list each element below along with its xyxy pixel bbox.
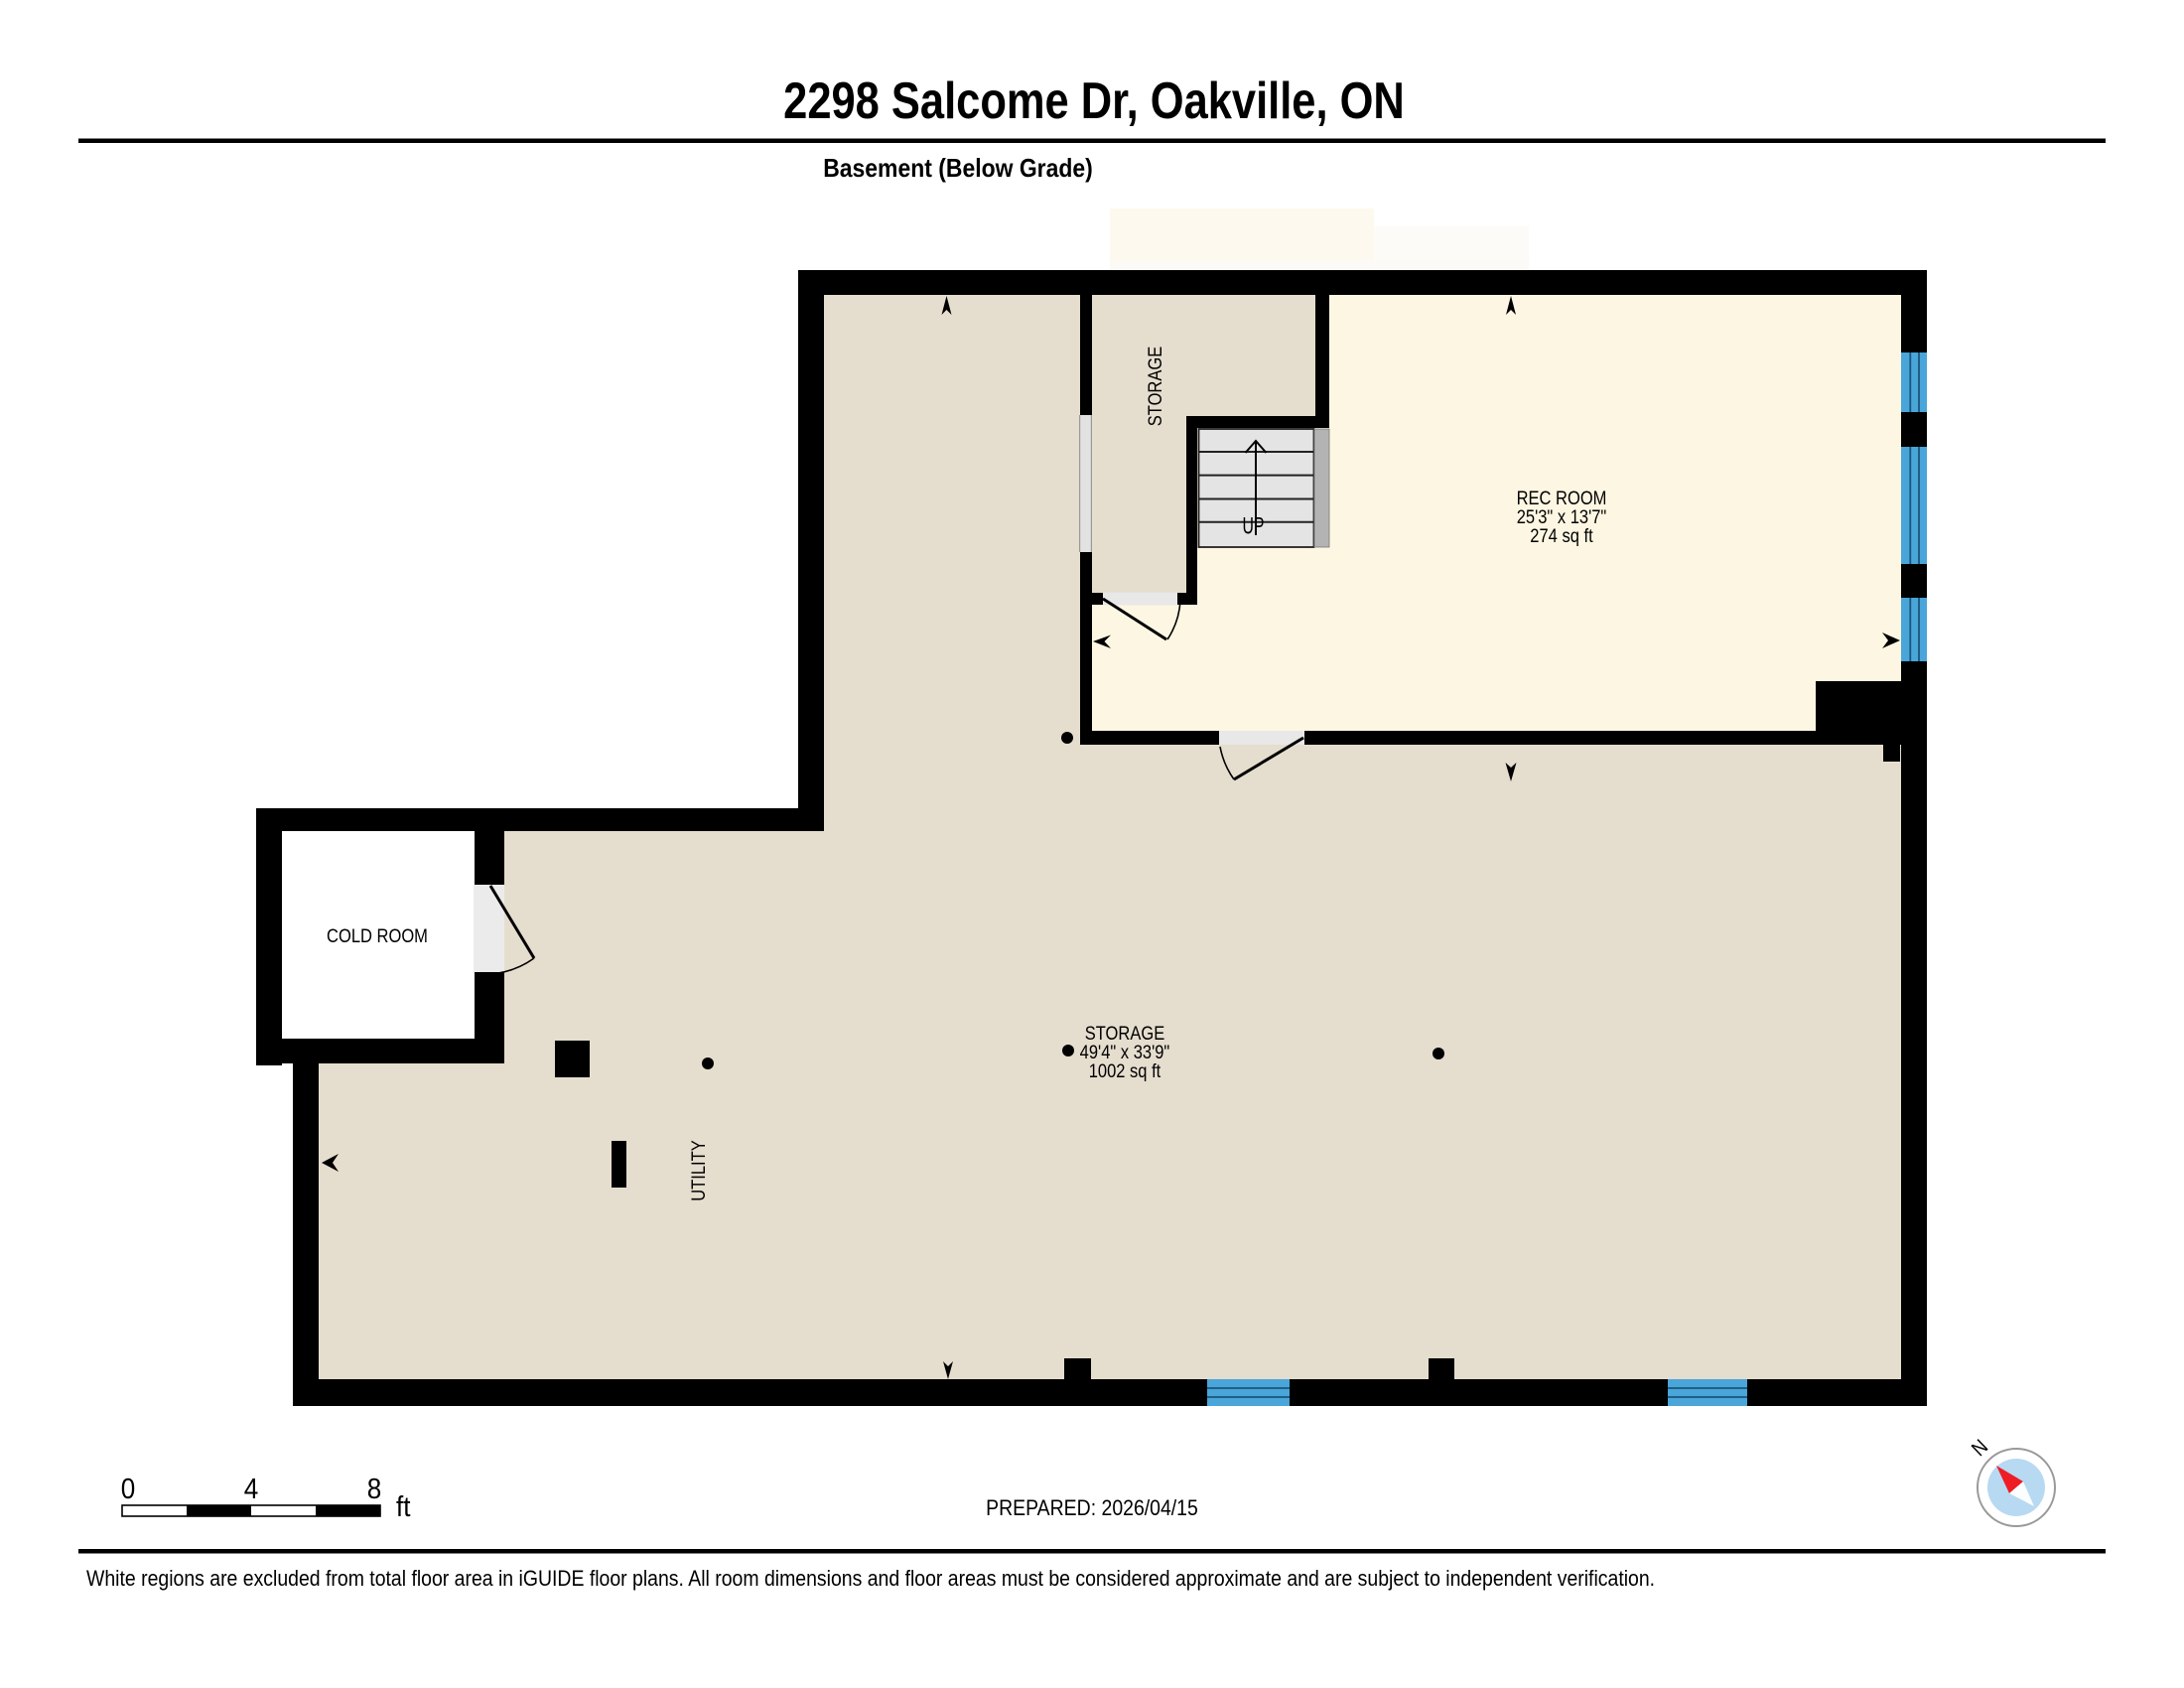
svg-text:274 sq ft: 274 sq ft	[1530, 525, 1592, 546]
svg-text:1002 sq ft: 1002 sq ft	[1089, 1060, 1161, 1081]
svg-text:PREPARED: 2026/04/15: PREPARED: 2026/04/15	[986, 1496, 1198, 1521]
svg-text:UTILITY: UTILITY	[688, 1140, 709, 1201]
svg-text:Basement (Below Grade): Basement (Below Grade)	[823, 155, 1093, 183]
svg-text:STORAGE: STORAGE	[1145, 347, 1165, 427]
svg-text:0: 0	[121, 1473, 136, 1505]
svg-text:UP: UP	[1242, 513, 1264, 539]
svg-text:COLD ROOM: COLD ROOM	[327, 925, 428, 946]
svg-text:ft: ft	[396, 1490, 411, 1523]
svg-text:2298 Salcome Dr, Oakville, ON: 2298 Salcome Dr, Oakville, ON	[783, 72, 1405, 130]
svg-text:N: N	[1968, 1435, 1993, 1461]
svg-text:4: 4	[244, 1473, 259, 1505]
svg-text:White regions are excluded fro: White regions are excluded from total fl…	[86, 1567, 1655, 1592]
svg-text:8: 8	[367, 1473, 382, 1505]
